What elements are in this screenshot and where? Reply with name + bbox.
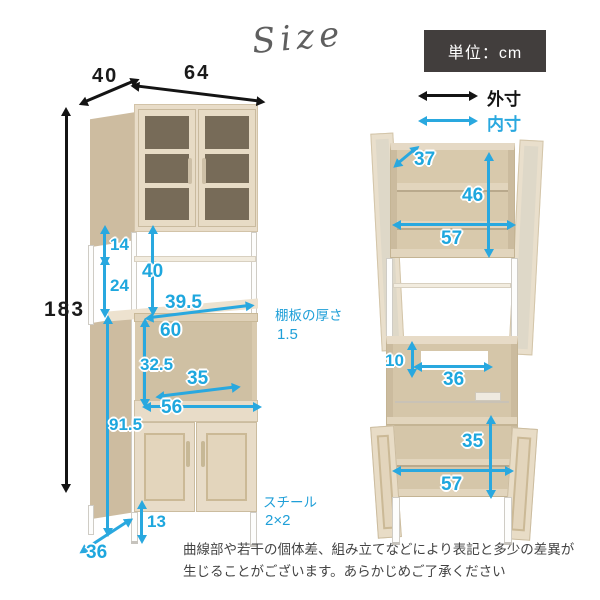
outer-dim-arrow-icon xyxy=(426,94,470,97)
front-top-height-arrow xyxy=(487,160,490,250)
outer-dim-label: 外寸 xyxy=(487,85,521,110)
front-left-leg xyxy=(392,497,400,543)
lower-cabinet-right-door xyxy=(196,422,257,512)
unit-box: 単位：cm xyxy=(424,30,546,72)
outlet xyxy=(475,392,501,401)
door-handle xyxy=(188,158,192,184)
disclaimer-line1: 曲線部や若干の個体差、組み立てなどにより表記と多少の差異が xyxy=(183,542,574,557)
top-cabinet-right-glass-door xyxy=(198,109,256,227)
width-top-label: 64 xyxy=(184,63,210,83)
width-top-arrow xyxy=(138,85,257,103)
frame-back-post xyxy=(88,245,94,325)
hole-width-arrow xyxy=(421,365,485,368)
interior-bottom-board xyxy=(391,249,514,257)
door-handle xyxy=(186,441,190,467)
interior-shelf xyxy=(393,459,511,467)
interior-side-wall xyxy=(511,344,517,424)
steel-note-label: スチール xyxy=(263,495,317,512)
front-top-width-arrow xyxy=(400,223,508,226)
front-top-height-label: 46 xyxy=(462,186,483,205)
front-bottom-width-label: 57 xyxy=(441,475,462,494)
inner-dim-arrow-icon xyxy=(426,119,470,122)
interior-side-wall xyxy=(508,150,514,257)
counter-label: 60 xyxy=(160,321,181,340)
glass-pane xyxy=(145,116,189,220)
front-bottom-height-arrow xyxy=(489,423,492,491)
disclaimer-text: 曲線部や若干の個体差、組み立てなどにより表記と多少の差異が 生じることがございま… xyxy=(183,539,593,582)
gap-bottom-label: 24 xyxy=(110,277,129,294)
shelf-note-label: 棚板の厚さ xyxy=(275,308,343,325)
size-diagram: Size 単位：cm 外寸 内寸 xyxy=(0,0,600,600)
interior-shelf xyxy=(397,183,508,192)
front-depth-label: 37 xyxy=(414,150,435,169)
door-panel xyxy=(511,437,532,532)
inner-dim-label: 内寸 xyxy=(487,110,521,135)
drawer-front xyxy=(134,400,258,422)
base-depth-label: 36 xyxy=(86,543,107,562)
lower-cabinet-left-door xyxy=(134,422,195,512)
mw-height-label: 32.5 xyxy=(140,356,173,373)
interior-bottom-board xyxy=(387,417,517,424)
hole-width-label: 36 xyxy=(443,370,464,389)
glass-mullion xyxy=(145,183,189,188)
cabinet-top-side-panel xyxy=(90,112,136,247)
front-open-shelf xyxy=(393,283,511,288)
shelf-note-arrow xyxy=(252,315,272,317)
front-bottom-height-label: 35 xyxy=(462,432,483,451)
disclaimer-line2: 生じることがございます。あらかじめご了承ください xyxy=(183,564,506,579)
steel-note-arrow xyxy=(245,503,261,505)
mw-depth-label: 35 xyxy=(187,369,208,388)
gap-top-arrow xyxy=(103,233,106,258)
steel-note-value: 2×2 xyxy=(265,512,290,531)
hole-height-label: 10 xyxy=(385,352,404,369)
mw-width-label: 56 xyxy=(161,398,182,417)
door-handle xyxy=(201,441,205,467)
glass-mullion xyxy=(205,149,249,154)
frame-back-leg xyxy=(88,505,94,535)
shelf-note-value: 1.5 xyxy=(277,326,298,345)
glass-mullion xyxy=(205,183,249,188)
size-script-title: Size xyxy=(250,14,345,62)
leg-height-label: 13 xyxy=(147,513,166,530)
height-label: 183 xyxy=(44,299,85,320)
leg-height-arrow xyxy=(140,508,143,536)
front-top-width-label: 57 xyxy=(441,229,462,248)
door-panel xyxy=(206,433,247,501)
front-bottom-width-arrow xyxy=(400,469,506,472)
depth-top-label: 40 xyxy=(92,66,118,86)
gap-top-label: 14 xyxy=(110,236,129,253)
slide-shelf-wire xyxy=(395,401,509,403)
door-panel xyxy=(144,433,185,501)
glass-pane xyxy=(205,116,249,220)
counter-depth-label: 39.5 xyxy=(165,293,202,312)
open-height-label: 40 xyxy=(142,262,163,281)
top-cabinet-left-glass-door xyxy=(138,109,196,227)
door-handle xyxy=(202,158,206,184)
gap-bottom-arrow xyxy=(103,264,106,310)
front-right-leg xyxy=(504,497,512,543)
glass-mullion xyxy=(145,149,189,154)
lower-height-label: 91.5 xyxy=(109,416,142,433)
